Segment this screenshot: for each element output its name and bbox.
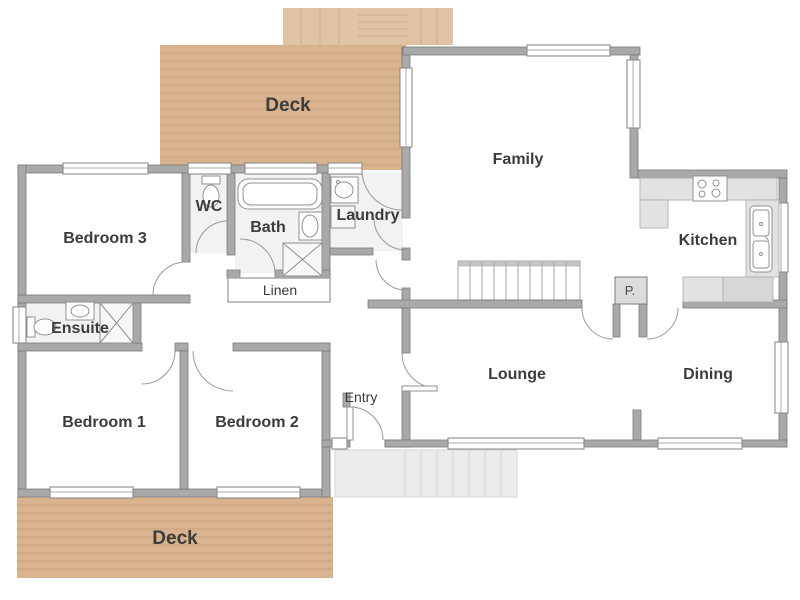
wall-lounge-dining-stub <box>633 410 641 440</box>
wall-bedroom2-north <box>233 343 330 351</box>
window-bedroom2-south <box>217 487 300 498</box>
laundry-label: Laundry <box>336 207 399 224</box>
door-hall-stairs <box>582 308 613 339</box>
lounge-label: Lounge <box>488 366 546 383</box>
staircase <box>458 261 580 300</box>
window-lounge-south <box>448 438 584 449</box>
kitchen-counter-south-right <box>723 277 773 302</box>
kitchen-label: Kitchen <box>679 232 738 249</box>
wall-lounge-west-upper <box>402 308 410 353</box>
door-leaf-entry <box>347 407 353 440</box>
bath-shower-icon <box>283 243 322 276</box>
bottom-deck-label: Deck <box>152 528 198 549</box>
pantry-label: P. <box>625 283 636 298</box>
window-dining-east <box>775 342 788 413</box>
wall-bedroom1-2-divider <box>180 351 188 489</box>
bedroom1-label: Bedroom 1 <box>62 414 146 431</box>
stair-top-rail <box>458 261 580 266</box>
linen-label: Linen <box>263 282 297 298</box>
dining-label: Dining <box>683 366 733 383</box>
bedroom2-label: Bedroom 2 <box>215 414 299 431</box>
window-family-east <box>627 60 640 128</box>
floor-plan: Deck Deck <box>0 0 800 600</box>
wall-family-west-2 <box>402 145 410 218</box>
window-entry-sidelight <box>332 438 347 449</box>
window-family-west <box>400 68 412 147</box>
linen-closet: Linen <box>228 278 330 302</box>
kitchen-counter-south-left <box>683 277 723 302</box>
door-hall-lounge <box>402 353 437 388</box>
bottom-deck: Deck <box>17 497 333 578</box>
window-ensuite-west <box>13 307 26 343</box>
top-deck-upper-platform <box>283 8 453 45</box>
wall-lounge-west-lower <box>402 388 410 447</box>
ensuite-label: Ensuite <box>51 320 109 337</box>
window-wc-north <box>188 163 231 174</box>
wall-bedroom2-east <box>322 343 330 497</box>
porch-landing <box>335 450 517 497</box>
window-family-north <box>527 45 610 56</box>
wall-bath-south-left <box>227 270 240 278</box>
window-bedroom3-north <box>63 163 148 174</box>
window-bedroom1-south <box>50 487 133 498</box>
window-laundry-north <box>328 163 362 174</box>
wc-label: WC <box>196 198 223 215</box>
door-bedroom3 <box>153 262 186 295</box>
ensuite-vanity-icon <box>66 302 94 320</box>
bedroom3-label: Bedroom 3 <box>63 230 147 247</box>
entry-porch <box>335 450 517 497</box>
cooktop-icon <box>693 176 727 201</box>
wall-wc-bath-divider <box>227 173 235 255</box>
window-bath-north <box>245 163 317 174</box>
wall-laundry-south <box>330 248 373 255</box>
kitchen-counter-west <box>640 200 668 228</box>
floor-plan-canvas: Deck Deck <box>0 0 800 600</box>
top-deck-steps <box>283 8 453 45</box>
bathtub-icon <box>238 179 322 209</box>
bath-label: Bath <box>250 219 286 236</box>
entry-label: Entry <box>345 389 378 405</box>
wall-lounge-north <box>368 300 582 308</box>
wall-pantry-stub-right <box>639 304 647 337</box>
family-label: Family <box>493 151 544 168</box>
door-entry-front <box>350 407 383 440</box>
wall-pantry-stub-left <box>613 304 620 337</box>
top-deck-label: Deck <box>265 95 311 116</box>
door-hall-family <box>376 260 406 290</box>
wall-bedroom3-wc-divider <box>182 173 190 262</box>
wall-bedroom1-top-stub <box>175 343 188 351</box>
bath-vanity-icon <box>299 212 322 240</box>
stair-outline <box>458 261 580 300</box>
window-dining-south <box>658 438 742 449</box>
pantry-closet: P. <box>615 277 647 304</box>
door-kitchen-dining <box>647 308 678 339</box>
wall-bedroom3-south <box>18 295 190 303</box>
laundry-tub-icon <box>331 177 358 203</box>
door-bedroom2 <box>193 351 233 391</box>
wall-bath-laundry-divider <box>322 173 330 278</box>
wall-ensuite-shower-east <box>133 303 141 343</box>
wall-ensuite-south <box>18 343 142 351</box>
door-bedroom1 <box>142 351 175 384</box>
door-leaf-hall-lounge <box>402 386 437 391</box>
top-deck: Deck <box>160 45 406 170</box>
double-sink-icon <box>750 206 772 272</box>
